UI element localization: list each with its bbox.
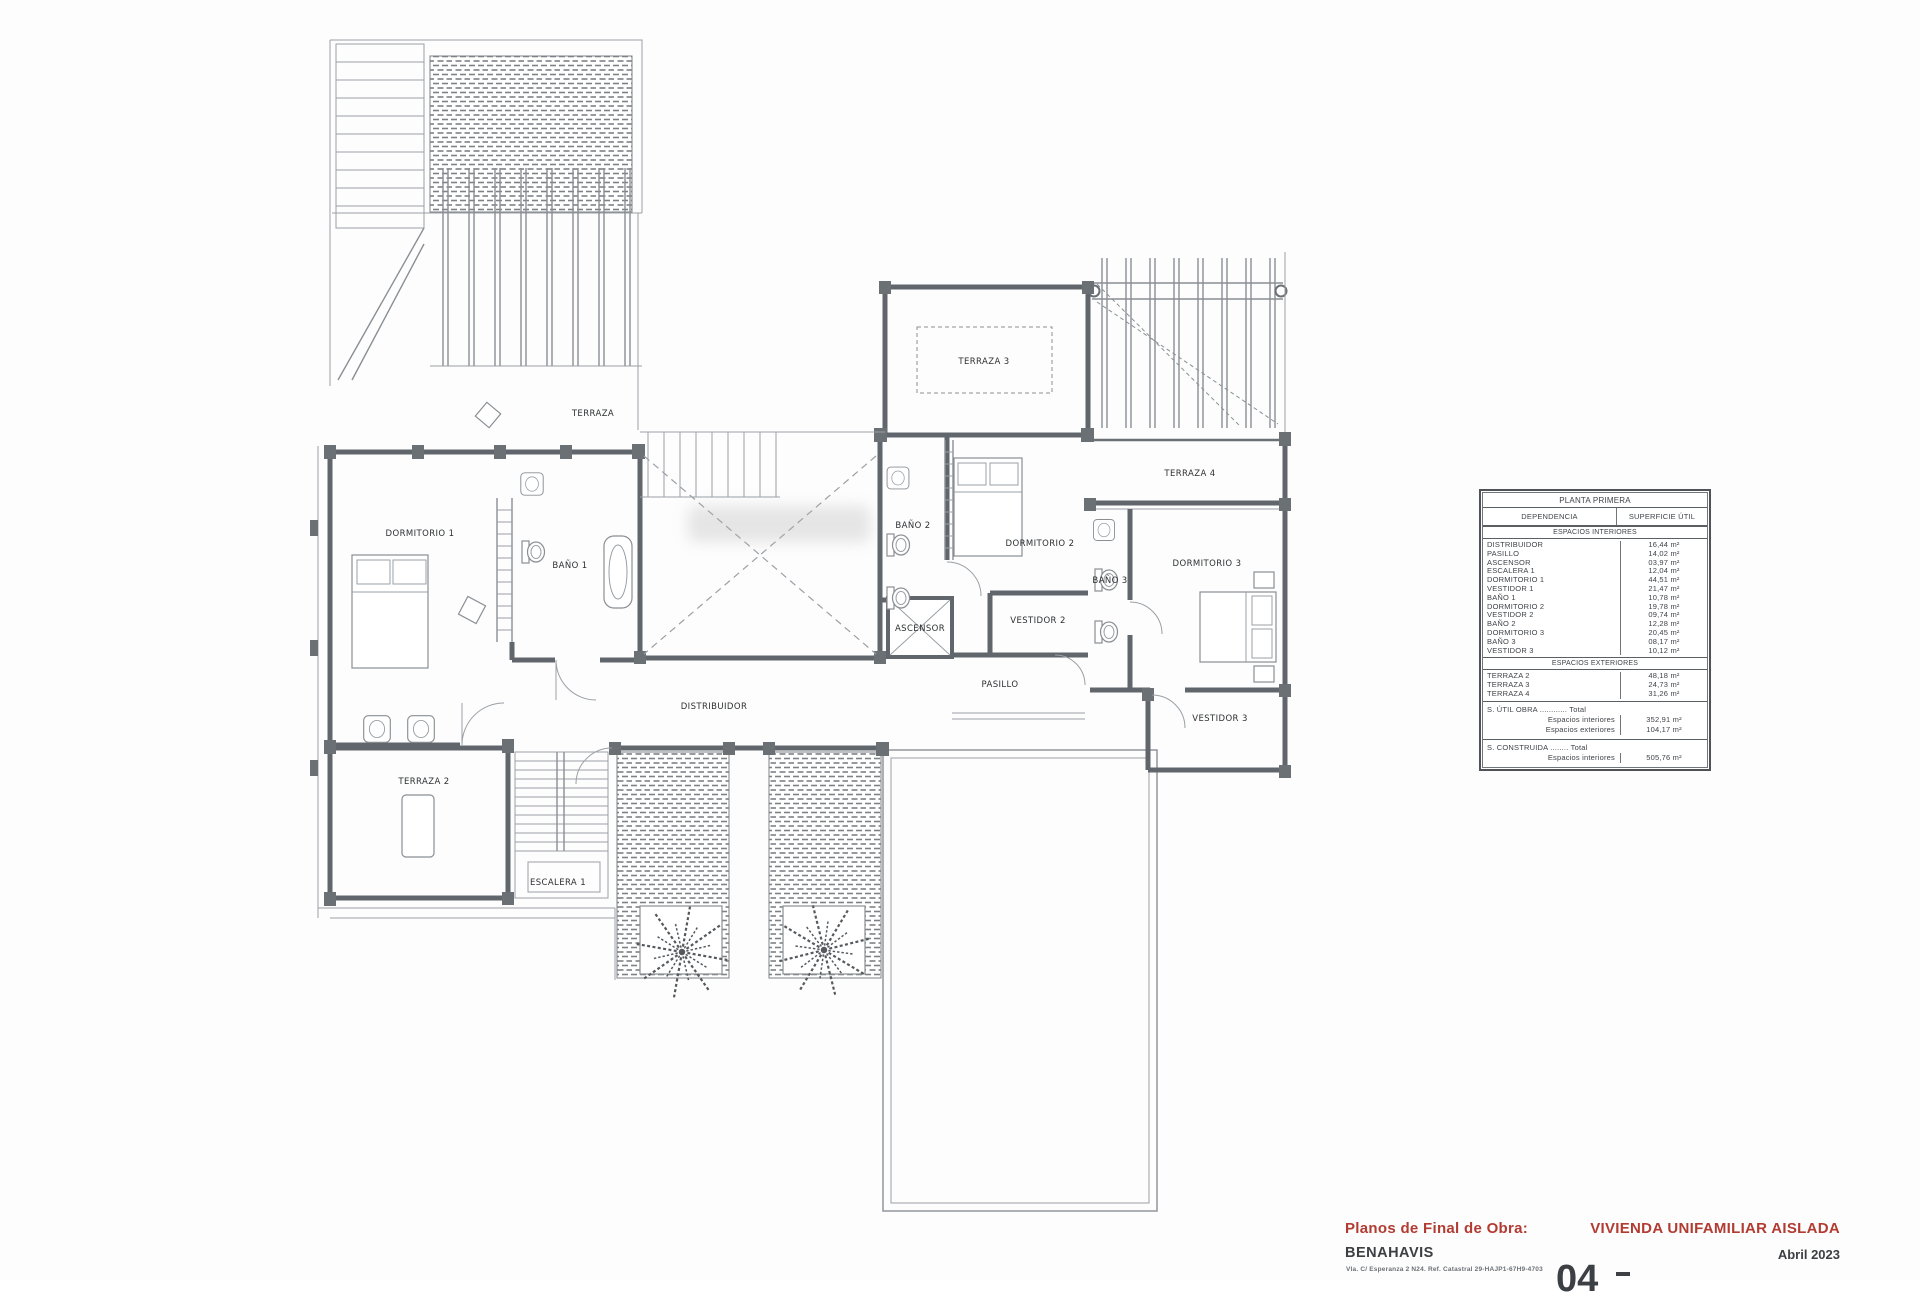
room-label-terraza: TERRAZA <box>571 409 614 419</box>
address-line: Vla. C/ Esperanza 2 N24. Ref. Catastral … <box>1346 1266 1543 1273</box>
row-label: VESTIDOR 3 <box>1483 647 1621 656</box>
row-value: 104,17 m² <box>1621 725 1707 735</box>
doc-type-label: Planos de Final de Obra: <box>1345 1220 1528 1237</box>
room-label-terraza-2: TERRAZA 2 <box>397 777 449 787</box>
col-dependencia: DEPENDENCIA <box>1483 508 1617 525</box>
totals-util-heading: S. ÚTIL OBRA ............ Total <box>1483 705 1707 715</box>
row-value: 31,26 m² <box>1621 690 1707 699</box>
interior-stair <box>515 752 608 898</box>
room-label-pasillo: PASILLO <box>982 680 1019 690</box>
room-label-escalera-1: ESCALERA 1 <box>530 878 586 888</box>
totals-construida-lines: Espacios interiores505,76 m² <box>1483 753 1707 763</box>
room-label-dormitorio-2: DORMITORIO 2 <box>1006 539 1075 549</box>
room-label-dormitorio-3: DORMITORIO 3 <box>1173 559 1242 569</box>
room-label-vestidor-3: VESTIDOR 3 <box>1192 714 1248 724</box>
pergola-upper-right <box>1089 252 1287 436</box>
pool-outline <box>883 750 1157 1211</box>
col-superficie: SUPERFICIE ÚTIL <box>1617 508 1707 525</box>
interior-rows: DISTRIBUIDOR16,44 m²PASILLO14,02 m²ASCEN… <box>1483 539 1707 658</box>
table-row: Espacios interiores505,76 m² <box>1483 753 1707 763</box>
section-espacios-interiores: ESPACIOS INTERIORES <box>1483 527 1707 539</box>
room-label-vestidor-2: VESTIDOR 2 <box>1010 616 1066 626</box>
table-row: TERRAZA 431,26 m² <box>1483 690 1707 699</box>
row-label: TERRAZA 4 <box>1483 690 1621 699</box>
location-label: BENAHAVIS <box>1345 1245 1434 1261</box>
row-value: 352,91 m² <box>1621 715 1707 725</box>
section-espacios-exteriores: ESPACIOS EXTERIORES <box>1483 658 1707 670</box>
watermark-smudge <box>688 506 870 542</box>
room-label-dormitorio-1: DORMITORIO 1 <box>386 529 455 539</box>
project-title: VIVIENDA UNIFAMILIAR AISLADA <box>1590 1220 1840 1237</box>
table-row: VESTIDOR 310,12 m² <box>1483 647 1707 656</box>
double-height-void <box>640 432 885 654</box>
room-label-bano-3: BAÑO 3 <box>1092 575 1127 586</box>
row-label: Espacios interiores <box>1483 753 1621 763</box>
totals-construida: S. CONSTRUIDA ........ Total Espacios in… <box>1483 740 1707 767</box>
table-row: Espacios interiores352,91 m² <box>1483 715 1707 725</box>
date-label: Abril 2023 <box>1778 1247 1840 1262</box>
table-header-row: DEPENDENCIA SUPERFICIE ÚTIL <box>1483 508 1707 527</box>
sheet-number-dash <box>1616 1272 1630 1276</box>
table-title: PLANTA PRIMERA <box>1483 493 1707 508</box>
row-label: Espacios interiores <box>1483 715 1621 725</box>
row-value: 505,76 m² <box>1621 753 1707 763</box>
planter-left <box>617 752 729 978</box>
room-label-terraza-4: TERRAZA 4 <box>1163 469 1215 479</box>
row-value: 10,12 m² <box>1621 647 1707 656</box>
room-label-terraza-3: TERRAZA 3 <box>957 357 1009 367</box>
exterior-rows: TERRAZA 248,18 m²TERRAZA 324,73 m²TERRAZ… <box>1483 670 1707 701</box>
room-label-distribuidor: DISTRIBUIDOR <box>681 702 748 712</box>
room-label-bano-1: BAÑO 1 <box>552 560 587 571</box>
scanned-plan-page: TERRAZATERRAZA 3TERRAZA 4DORMITORIO 1BAÑ… <box>0 0 1920 1280</box>
totals-construida-heading: S. CONSTRUIDA ........ Total <box>1483 743 1707 753</box>
table-row: Espacios exteriores104,17 m² <box>1483 725 1707 735</box>
area-table: PLANTA PRIMERA DEPENDENCIA SUPERFICIE ÚT… <box>1479 489 1711 771</box>
room-label-bano-2: BAÑO 2 <box>895 520 930 531</box>
row-label: Espacios exteriores <box>1483 725 1621 735</box>
totals-util: S. ÚTIL OBRA ............ Total Espacios… <box>1483 702 1707 740</box>
totals-util-lines: Espacios interiores352,91 m²Espacios ext… <box>1483 715 1707 735</box>
room-label-ascensor: ASCENSOR <box>895 624 945 634</box>
